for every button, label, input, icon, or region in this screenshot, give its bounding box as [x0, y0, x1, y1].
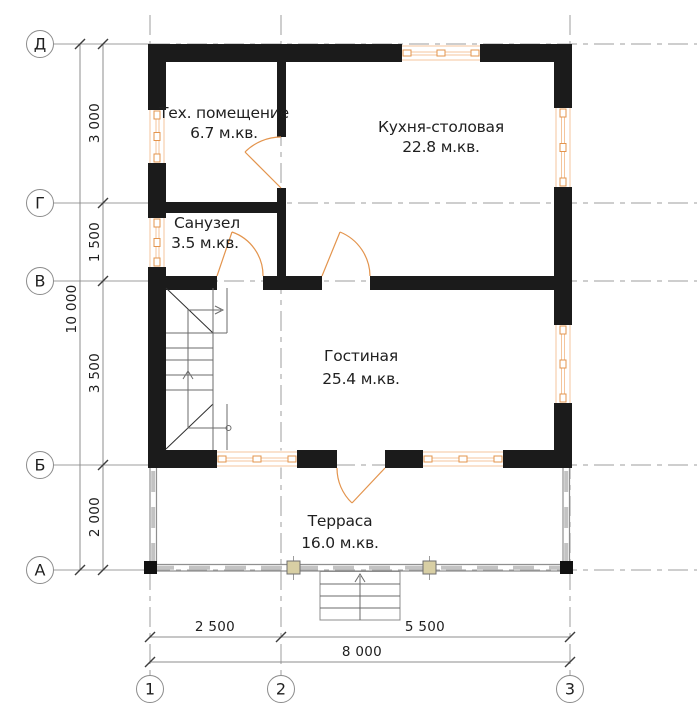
- room-label-living: Гостиная: [324, 347, 398, 365]
- dim-v-segment-3: 3 500: [87, 353, 103, 393]
- window-bottom-living-left: [217, 451, 297, 468]
- dim-v-segment-2: 1 500: [87, 222, 103, 262]
- room-label-bathroom: Санузел: [174, 214, 240, 232]
- dim-h-segment-2: 5 500: [405, 619, 445, 635]
- room-label-utility: Тех. помещение: [158, 104, 289, 122]
- room-label-kitchen: Кухня-столовая: [378, 118, 504, 136]
- door-kitchen: [322, 232, 370, 276]
- room-area-terrace: 16.0 м.кв.: [301, 534, 378, 552]
- room-area-bathroom: 3.5 м.кв.: [171, 234, 239, 252]
- floor-plan-drawing: 3 000 1 500 3 500 2 000 10 000 2 500 5 5…: [0, 0, 700, 721]
- door-utility-room: [245, 137, 281, 188]
- svg-text:Д: Д: [34, 35, 47, 54]
- room-labels: Тех. помещение 6.7 м.кв. Кухня-столовая …: [158, 104, 504, 552]
- dim-h-total: 8 000: [342, 644, 382, 660]
- svg-text:3: 3: [565, 680, 575, 699]
- room-area-utility: 6.7 м.кв.: [190, 124, 258, 142]
- staircase: [166, 288, 231, 450]
- window-left-bathroom: [149, 218, 166, 267]
- dim-v-segment-1: 3 000: [87, 103, 103, 143]
- svg-text:А: А: [35, 561, 46, 580]
- window-right-living: [555, 325, 572, 403]
- dim-h-segment-1: 2 500: [195, 619, 235, 635]
- dim-v-total: 10 000: [64, 284, 80, 333]
- window-right-kitchen: [555, 108, 572, 187]
- room-label-terrace: Терраса: [307, 512, 373, 530]
- svg-text:В: В: [35, 272, 46, 291]
- floor-plan-sheet: 3 000 1 500 3 500 2 000 10 000 2 500 5 5…: [0, 0, 700, 721]
- room-area-kitchen: 22.8 м.кв.: [402, 138, 479, 156]
- window-bottom-living-right: [423, 451, 503, 468]
- svg-text:1: 1: [145, 680, 155, 699]
- window-top-kitchen: [402, 45, 480, 62]
- svg-text:Б: Б: [35, 456, 46, 475]
- dim-v-segment-4: 2 000: [87, 497, 103, 537]
- room-area-living: 25.4 м.кв.: [322, 370, 399, 388]
- entry-steps: [320, 572, 400, 621]
- door-terrace: [337, 468, 385, 503]
- svg-text:2: 2: [276, 680, 286, 699]
- svg-text:Г: Г: [35, 194, 45, 213]
